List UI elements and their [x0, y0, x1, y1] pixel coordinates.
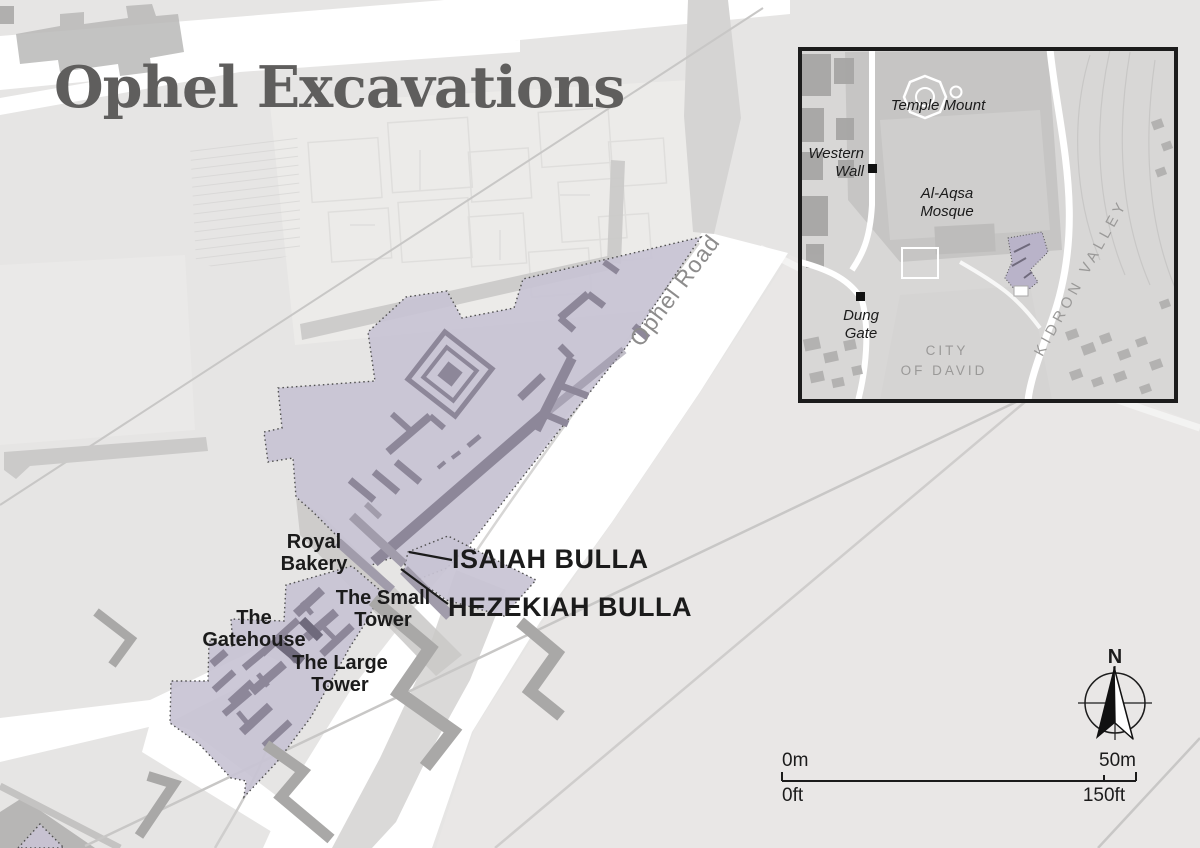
- large-tower-label: The Large: [292, 652, 388, 674]
- large-tower-label: Tower: [311, 674, 369, 696]
- al-aqsa-label: Mosque: [920, 203, 973, 220]
- dung-gate-label: Gate: [845, 325, 878, 342]
- royal-bakery-label: Royal: [287, 531, 341, 553]
- small-tower-label: The Small: [336, 587, 430, 609]
- dung-gate-marker: [856, 292, 865, 301]
- al-aqsa-building: [934, 223, 995, 254]
- ophel-excavations-map: Ophel Excavations Ophel Road Royal Baker…: [0, 0, 1200, 848]
- building-footprint: [0, 6, 14, 24]
- western-wall-marker: [868, 164, 877, 173]
- temple-mount-label: Temple Mount: [891, 97, 986, 114]
- hezekiah-bulla-label: HEZEKIAH BULLA: [448, 592, 692, 622]
- western-wall-label: Western: [808, 145, 864, 162]
- city-of-david-label: OF DAVID: [901, 363, 988, 378]
- western-wall-label: Wall: [835, 163, 865, 180]
- inset-map: Temple Mount Western Wall Al-Aqsa Mosque…: [800, 49, 1176, 401]
- platform-courtyard: [880, 110, 1050, 240]
- dung-gate-label: Dung: [843, 307, 880, 324]
- map-canvas: Ophel Excavations Ophel Road Royal Baker…: [0, 0, 1200, 848]
- isaiah-bulla-label: ISAIAH BULLA: [452, 544, 649, 574]
- inset-structure: [1014, 286, 1028, 296]
- city-of-david-label: CITY: [926, 343, 969, 358]
- scale-150ft-label: 150ft: [1083, 785, 1126, 806]
- scale-50m-label: 50m: [1099, 750, 1136, 771]
- small-tower-label: Tower: [354, 609, 412, 631]
- al-aqsa-label: Al-Aqsa: [920, 185, 974, 202]
- gatehouse-label: Gatehouse: [202, 629, 305, 651]
- terrain-patch: [0, 255, 195, 445]
- gatehouse-label: The: [236, 607, 272, 629]
- scale-0m-label: 0m: [782, 750, 808, 771]
- scale-0ft-label: 0ft: [782, 785, 804, 806]
- north-label: N: [1108, 646, 1122, 668]
- page-title: Ophel Excavations: [54, 54, 624, 121]
- royal-bakery-label: Bakery: [281, 553, 349, 575]
